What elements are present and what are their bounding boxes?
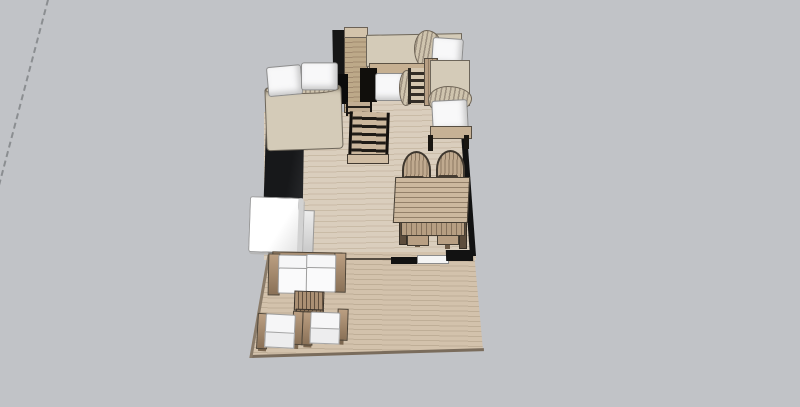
chair-front-face xyxy=(264,331,295,349)
dining-table[interactable] xyxy=(393,175,471,245)
chair-front-face xyxy=(309,328,340,345)
window-sill[interactable] xyxy=(417,255,449,264)
stair-landing-step xyxy=(347,154,389,164)
armchair[interactable] xyxy=(301,307,346,349)
3d-viewport[interactable] xyxy=(0,0,800,407)
pillow xyxy=(301,62,338,90)
axis-guide-line xyxy=(0,0,49,186)
table-apron xyxy=(401,221,465,236)
bed-leg xyxy=(428,135,433,151)
corner-bed[interactable] xyxy=(428,56,472,152)
armchair[interactable] xyxy=(256,309,302,353)
sofa[interactable] xyxy=(268,251,345,296)
bunk-bed[interactable] xyxy=(360,68,428,106)
bed-leg xyxy=(464,135,469,149)
table-top xyxy=(393,177,470,223)
double-bed[interactable] xyxy=(262,59,343,152)
pillow xyxy=(266,64,303,97)
seat-cushion xyxy=(306,267,336,293)
staircase[interactable] xyxy=(348,111,390,158)
door-threshold-line xyxy=(346,258,392,260)
wall-segment-1[interactable] xyxy=(391,257,418,264)
wardrobe-top-face xyxy=(344,27,368,38)
refrigerator[interactable] xyxy=(248,196,304,254)
